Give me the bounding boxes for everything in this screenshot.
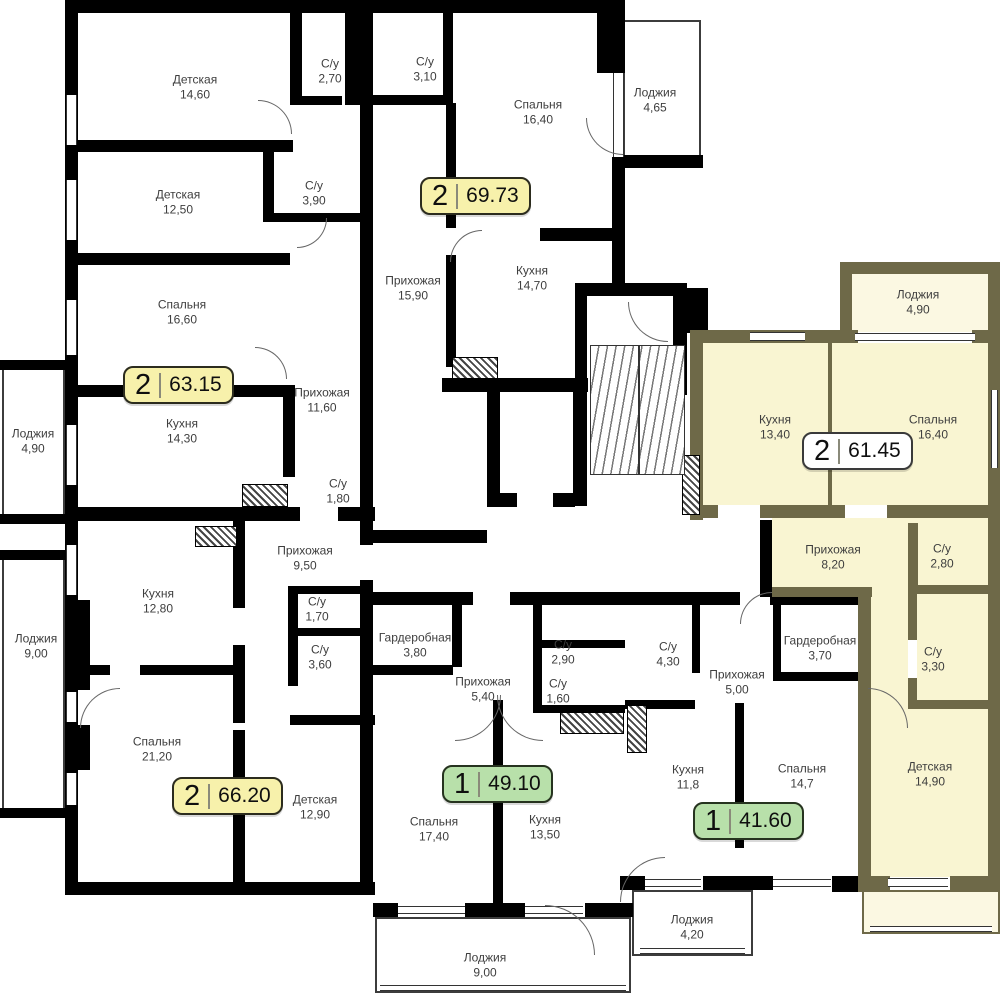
highlighted-wall: [858, 876, 890, 892]
room-area: 9,00: [464, 966, 507, 981]
room-area: 4,20: [671, 928, 714, 943]
apartment-rooms-count: 2: [184, 780, 200, 813]
room-name: Лоджия: [671, 913, 714, 928]
window: [888, 878, 948, 887]
apartment-rooms-count: 1: [705, 805, 721, 838]
room-name: Спальня: [410, 815, 458, 830]
room-label: Прихожая9,50: [277, 544, 333, 575]
apartment-badge-69-73[interactable]: 2 69.73: [420, 177, 531, 215]
highlighted-apartment-fill: [858, 597, 988, 877]
door-opening: [845, 505, 887, 518]
room-name: Детская: [293, 793, 337, 808]
wall: [140, 665, 235, 675]
apartment-area: 41.60: [739, 809, 792, 833]
room-area: 14,30: [166, 432, 198, 447]
room-area: 14,60: [173, 88, 217, 103]
door-swing-icon: [450, 230, 482, 262]
room-area: 9,00: [15, 647, 58, 662]
wall: [465, 903, 525, 917]
wall: [773, 672, 858, 681]
room-name: Спальня: [133, 735, 181, 750]
room-area: 11,8: [672, 778, 704, 793]
wall: [692, 603, 700, 673]
apartment-badge-66-20[interactable]: 2 66.20: [172, 777, 283, 815]
apartment-rooms-count: 1: [454, 768, 470, 801]
wall: [288, 586, 298, 686]
wall: [585, 903, 633, 917]
room-label: Гардеробная3,80: [379, 631, 452, 662]
room-name: Детская: [173, 73, 217, 88]
room-label: Лоджия4,90: [12, 427, 55, 458]
wall: [290, 628, 373, 636]
room-area: 3,80: [379, 646, 452, 661]
room-label: Прихожая8,20: [805, 543, 861, 574]
wall: [442, 378, 588, 392]
room-area: 2,70: [318, 72, 341, 87]
room-label: Прихожая5,40: [455, 675, 511, 706]
room-area: 3,30: [921, 660, 944, 675]
wall: [263, 148, 274, 220]
room-name: Детская: [908, 760, 952, 775]
highlighted-wall: [828, 343, 832, 508]
window: [380, 985, 626, 991]
room-area: 14,90: [908, 775, 952, 790]
room-area: 1,80: [326, 492, 349, 507]
wall: [703, 876, 773, 890]
room-label: С/у2,90: [551, 638, 574, 669]
room-label: С/у3,60: [308, 643, 331, 674]
room-name: Прихожая: [709, 668, 765, 683]
door-swing-icon: [586, 118, 623, 155]
highlighted-wall: [908, 585, 1000, 594]
window: [66, 95, 77, 145]
door-swing-icon: [628, 302, 668, 342]
room-label: Спальня16,60: [158, 298, 206, 329]
room-area: 14,70: [516, 279, 548, 294]
room-area: 21,20: [133, 750, 181, 765]
room-label: Лоджия4,20: [671, 913, 714, 944]
wall: [373, 903, 398, 917]
highlighted-wall: [908, 523, 918, 585]
apartment-badge-63-15[interactable]: 2 63.15: [123, 366, 234, 404]
badge-divider: [208, 784, 210, 809]
room-label: С/у1,70: [305, 595, 328, 626]
room-name: Прихожая: [805, 543, 861, 558]
room-label: С/у2,70: [318, 57, 341, 88]
badge-divider: [456, 184, 458, 209]
door-swing-icon: [297, 218, 327, 248]
wall: [345, 13, 360, 105]
window: [66, 545, 77, 595]
highlighted-wall: [908, 700, 1000, 709]
apartment-badge-49-10[interactable]: 1 49.10: [442, 765, 553, 803]
wall: [832, 876, 859, 892]
wall: [446, 255, 456, 367]
door-swing-icon: [740, 592, 772, 624]
room-area: 5,40: [455, 690, 511, 705]
badge-divider: [478, 772, 480, 797]
room-area: 15,90: [385, 289, 441, 304]
wall: [760, 520, 772, 597]
room-name: Прихожая: [277, 544, 333, 559]
wall: [773, 603, 781, 678]
door-swing-icon: [255, 347, 287, 379]
wall: [680, 288, 708, 333]
room-area: 11,60: [294, 401, 350, 416]
vent-shaft: [195, 526, 237, 547]
room-label: С/у3,90: [302, 179, 325, 210]
room-label: Спальня21,20: [133, 735, 181, 766]
room-name: Лоджия: [897, 288, 940, 303]
room-area: 4,90: [897, 303, 940, 318]
wall: [290, 586, 373, 594]
room-name: С/у: [921, 645, 944, 660]
room-label: Лоджия9,00: [464, 951, 507, 982]
highlighted-wall: [950, 876, 988, 892]
room-name: Кухня: [529, 813, 561, 828]
wall: [290, 715, 375, 725]
wall: [553, 493, 575, 507]
window: [66, 773, 77, 805]
room-name: Гардеробная: [784, 634, 857, 649]
wall: [623, 155, 703, 168]
door-opening: [300, 507, 338, 521]
room-name: Кухня: [672, 763, 704, 778]
room-area: 3,70: [784, 649, 857, 664]
door-swing-icon: [258, 100, 292, 134]
door-swing-icon: [80, 688, 120, 728]
wall: [510, 592, 633, 605]
vent-shaft: [242, 484, 288, 507]
room-label: С/у4,30: [656, 640, 679, 671]
wall: [612, 157, 625, 290]
wall: [290, 13, 302, 98]
window: [991, 390, 998, 468]
room-name: Прихожая: [385, 274, 441, 289]
room-area: 8,20: [805, 558, 861, 573]
apartment-badge-41-60[interactable]: 1 41.60: [693, 802, 804, 840]
room-name: Лоджия: [464, 951, 507, 966]
apartment-rooms-count: 2: [432, 180, 448, 213]
room-label: Кухня13,50: [529, 813, 561, 844]
wall: [290, 96, 342, 105]
window: [773, 879, 831, 887]
wall: [0, 360, 66, 370]
room-area: 2,90: [551, 653, 574, 668]
window: [870, 926, 992, 932]
room-area: 3,10: [413, 70, 436, 85]
wall: [373, 95, 445, 105]
room-area: 13,50: [529, 828, 561, 843]
room-label: С/у1,60: [546, 677, 569, 708]
room-label: Спальня14,7: [778, 762, 826, 793]
highlighted-wall: [858, 597, 871, 880]
room-name: Прихожая: [455, 675, 511, 690]
room-label: С/у2,80: [930, 542, 953, 573]
wall: [65, 600, 90, 690]
wall: [233, 645, 245, 723]
room-area: 16,40: [514, 113, 562, 128]
window: [855, 333, 975, 341]
room-name: Лоджия: [15, 632, 58, 647]
room-area: 12,80: [142, 602, 174, 617]
room-name: С/у: [656, 640, 679, 655]
room-label: Кухня14,70: [516, 264, 548, 295]
room-name: Лоджия: [12, 427, 55, 442]
highlighted-wall: [840, 262, 1000, 274]
wall: [633, 592, 740, 605]
room-name: Кухня: [759, 413, 791, 428]
wall: [533, 640, 625, 648]
apartment-area: 66.20: [218, 784, 271, 808]
apartment-rooms-count: 2: [814, 435, 830, 468]
room-label: С/у3,30: [921, 645, 944, 676]
room-label: Прихожая11,60: [294, 386, 350, 417]
wall: [575, 296, 587, 478]
window: [66, 180, 77, 240]
room-area: 3,60: [308, 658, 331, 673]
room-area: 4,65: [634, 101, 677, 116]
room-area: 14,7: [778, 777, 826, 792]
wall: [65, 882, 375, 895]
room-name: С/у: [305, 595, 328, 610]
room-label: С/у3,10: [413, 55, 436, 86]
wall: [360, 13, 373, 882]
badge-divider: [838, 439, 840, 464]
room-name: Спальня: [158, 298, 206, 313]
wall: [373, 530, 487, 543]
room-area: 16,40: [909, 428, 957, 443]
room-label: Лоджия4,90: [897, 288, 940, 319]
room-name: Спальня: [909, 413, 957, 428]
room-area: 4,90: [12, 442, 55, 457]
room-label: Детская14,60: [173, 73, 217, 104]
wall: [0, 808, 66, 818]
door-opening: [360, 545, 373, 580]
wall: [487, 392, 500, 506]
room-area: 3,90: [302, 194, 325, 209]
room-name: Детская: [156, 188, 200, 203]
wall: [597, 13, 625, 73]
room-name: С/у: [546, 677, 569, 692]
window: [398, 906, 465, 914]
highlighted-wall: [772, 587, 872, 597]
room-name: Гардеробная: [379, 631, 452, 646]
vent-shaft: [452, 357, 498, 379]
badge-divider: [159, 373, 161, 398]
apartment-area: 61.45: [848, 439, 901, 463]
wall: [65, 0, 625, 13]
room-name: С/у: [326, 477, 349, 492]
stairs: [590, 345, 685, 475]
wall: [65, 725, 90, 770]
room-name: Лоджия: [634, 86, 677, 101]
room-area: 5,00: [709, 683, 765, 698]
window: [750, 332, 805, 341]
room-label: Спальня16,40: [514, 98, 562, 129]
window: [66, 692, 77, 722]
window: [66, 425, 77, 485]
wall: [78, 140, 293, 152]
room-label: Кухня11,8: [672, 763, 704, 794]
wall: [487, 493, 517, 507]
wall: [0, 514, 66, 524]
room-area: 2,80: [930, 557, 953, 572]
vent-shaft: [627, 705, 647, 753]
room-label: Кухня14,30: [166, 417, 198, 448]
wall: [283, 385, 295, 477]
room-label: С/у1,80: [326, 477, 349, 508]
room-area: 4,30: [656, 655, 679, 670]
room-label: Гардеробная3,70: [784, 634, 857, 665]
room-name: Спальня: [778, 762, 826, 777]
door-swing-icon: [620, 857, 665, 902]
room-label: Лоджия9,00: [15, 632, 58, 663]
room-name: Спальня: [514, 98, 562, 113]
wall: [452, 603, 462, 667]
apartment-area: 63.15: [169, 373, 222, 397]
room-name: Кухня: [142, 587, 174, 602]
room-label: Спальня16,40: [909, 413, 957, 444]
vent-shaft: [560, 712, 624, 734]
room-name: Кухня: [166, 417, 198, 432]
room-label: Кухня13,40: [759, 413, 791, 444]
room-area: 16,60: [158, 313, 206, 328]
wall: [78, 253, 290, 265]
room-area: 1,70: [305, 610, 328, 625]
wall: [373, 665, 453, 675]
room-name: С/у: [302, 179, 325, 194]
room-area: 17,40: [410, 830, 458, 845]
room-name: С/у: [318, 57, 341, 72]
room-label: Прихожая15,90: [385, 274, 441, 305]
apartment-area: 49.10: [488, 772, 541, 796]
wall: [540, 228, 625, 241]
room-area: 12,50: [156, 203, 200, 218]
room-area: 12,90: [293, 808, 337, 823]
room-name: С/у: [551, 638, 574, 653]
room-label: Кухня12,80: [142, 587, 174, 618]
room-label: Лоджия4,65: [634, 86, 677, 117]
room-label: Спальня17,40: [410, 815, 458, 846]
badge-divider: [729, 809, 731, 834]
room-label: Детская12,50: [156, 188, 200, 219]
wall: [0, 550, 66, 560]
window: [640, 948, 745, 954]
room-name: Кухня: [516, 264, 548, 279]
room-name: С/у: [930, 542, 953, 557]
highlighted-wall: [810, 330, 855, 343]
stairs-divider: [638, 346, 640, 474]
room-label: Детская12,90: [293, 793, 337, 824]
wall: [443, 13, 453, 105]
room-area: 1,60: [546, 692, 569, 707]
room-name: С/у: [413, 55, 436, 70]
room-area: 9,50: [277, 559, 333, 574]
apartment-area: 69.73: [466, 184, 519, 208]
door-opening: [718, 505, 760, 518]
wall: [575, 283, 687, 296]
apartment-badge-61-45-highlighted[interactable]: 2 61.45: [802, 432, 913, 470]
apartment-rooms-count: 2: [135, 369, 151, 402]
room-name: С/у: [308, 643, 331, 658]
room-area: 13,40: [759, 428, 791, 443]
door-opening: [908, 640, 917, 678]
room-name: Прихожая: [294, 386, 350, 401]
room-label: Прихожая5,00: [709, 668, 765, 699]
room-label: Детская14,90: [908, 760, 952, 791]
loggia-outline: [2, 558, 65, 810]
floor-plan: Детская14,60С/у2,70С/у3,10Спальня16,40Ло…: [0, 0, 1000, 1002]
window: [66, 300, 77, 355]
